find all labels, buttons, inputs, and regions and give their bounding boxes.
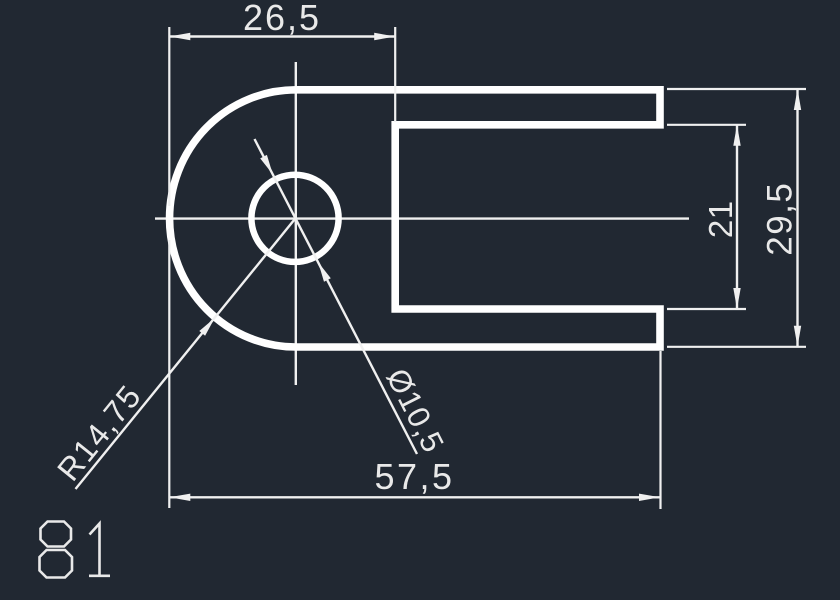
svg-text:26,5: 26,5 — [243, 0, 321, 38]
svg-text:29,5: 29,5 — [761, 182, 800, 256]
svg-text:57,5: 57,5 — [374, 456, 454, 497]
svg-text:21: 21 — [702, 200, 739, 238]
